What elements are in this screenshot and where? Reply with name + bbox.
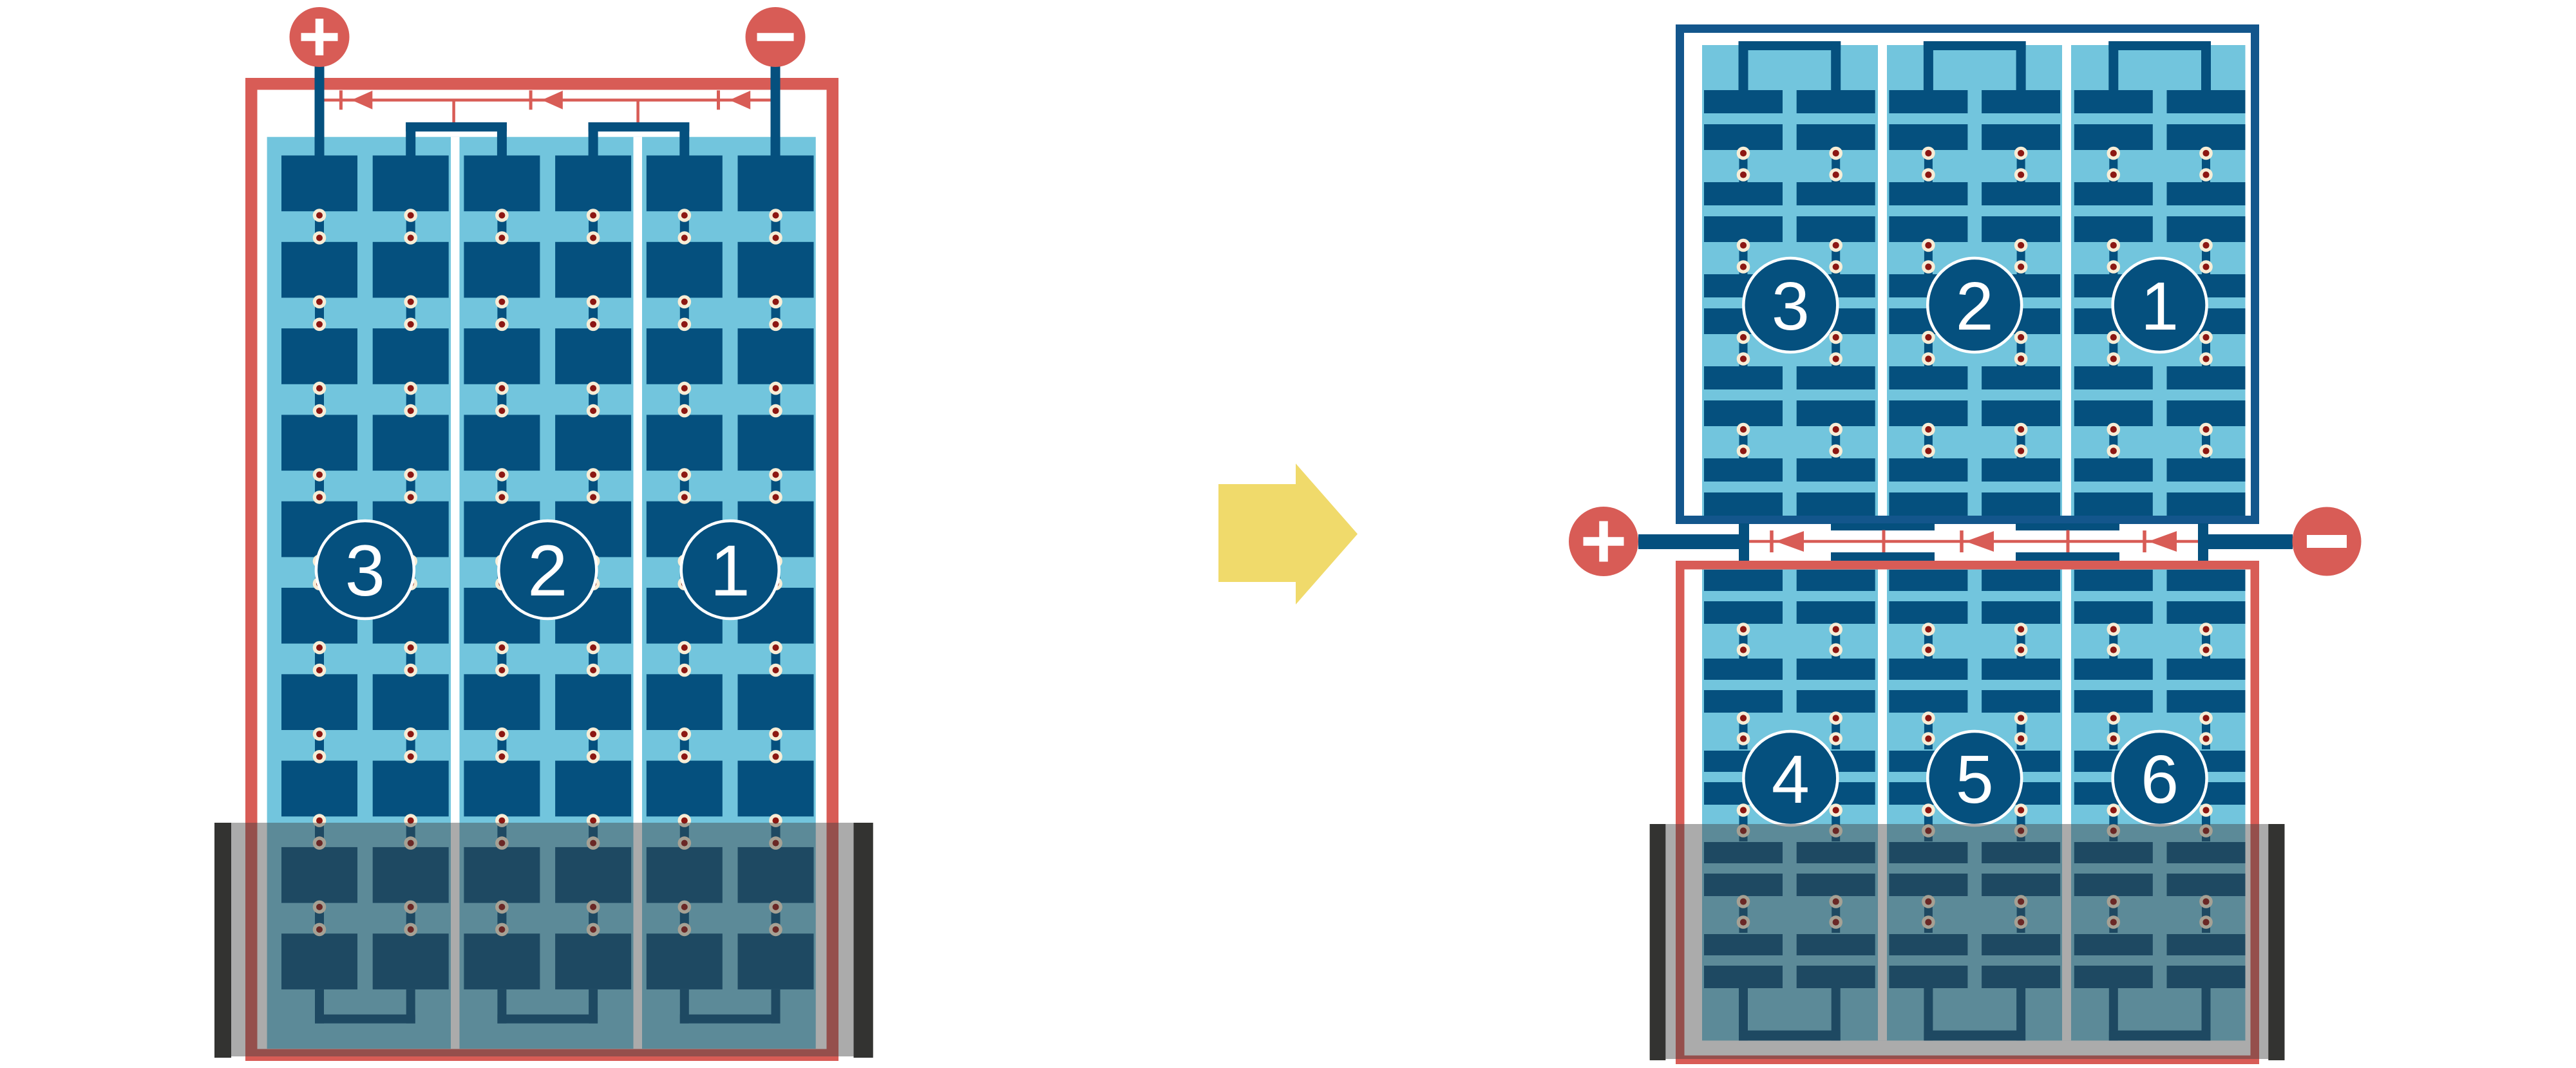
- svg-text:6: 6: [2141, 742, 2179, 818]
- svg-text:4: 4: [1772, 742, 1810, 818]
- svg-text:2: 2: [1956, 268, 1994, 344]
- svg-text:2: 2: [527, 530, 567, 611]
- svg-text:3: 3: [345, 530, 385, 611]
- svg-text:1: 1: [2141, 268, 2179, 344]
- svg-text:5: 5: [1956, 742, 1994, 818]
- svg-text:1: 1: [710, 530, 750, 611]
- svg-text:3: 3: [1772, 268, 1810, 344]
